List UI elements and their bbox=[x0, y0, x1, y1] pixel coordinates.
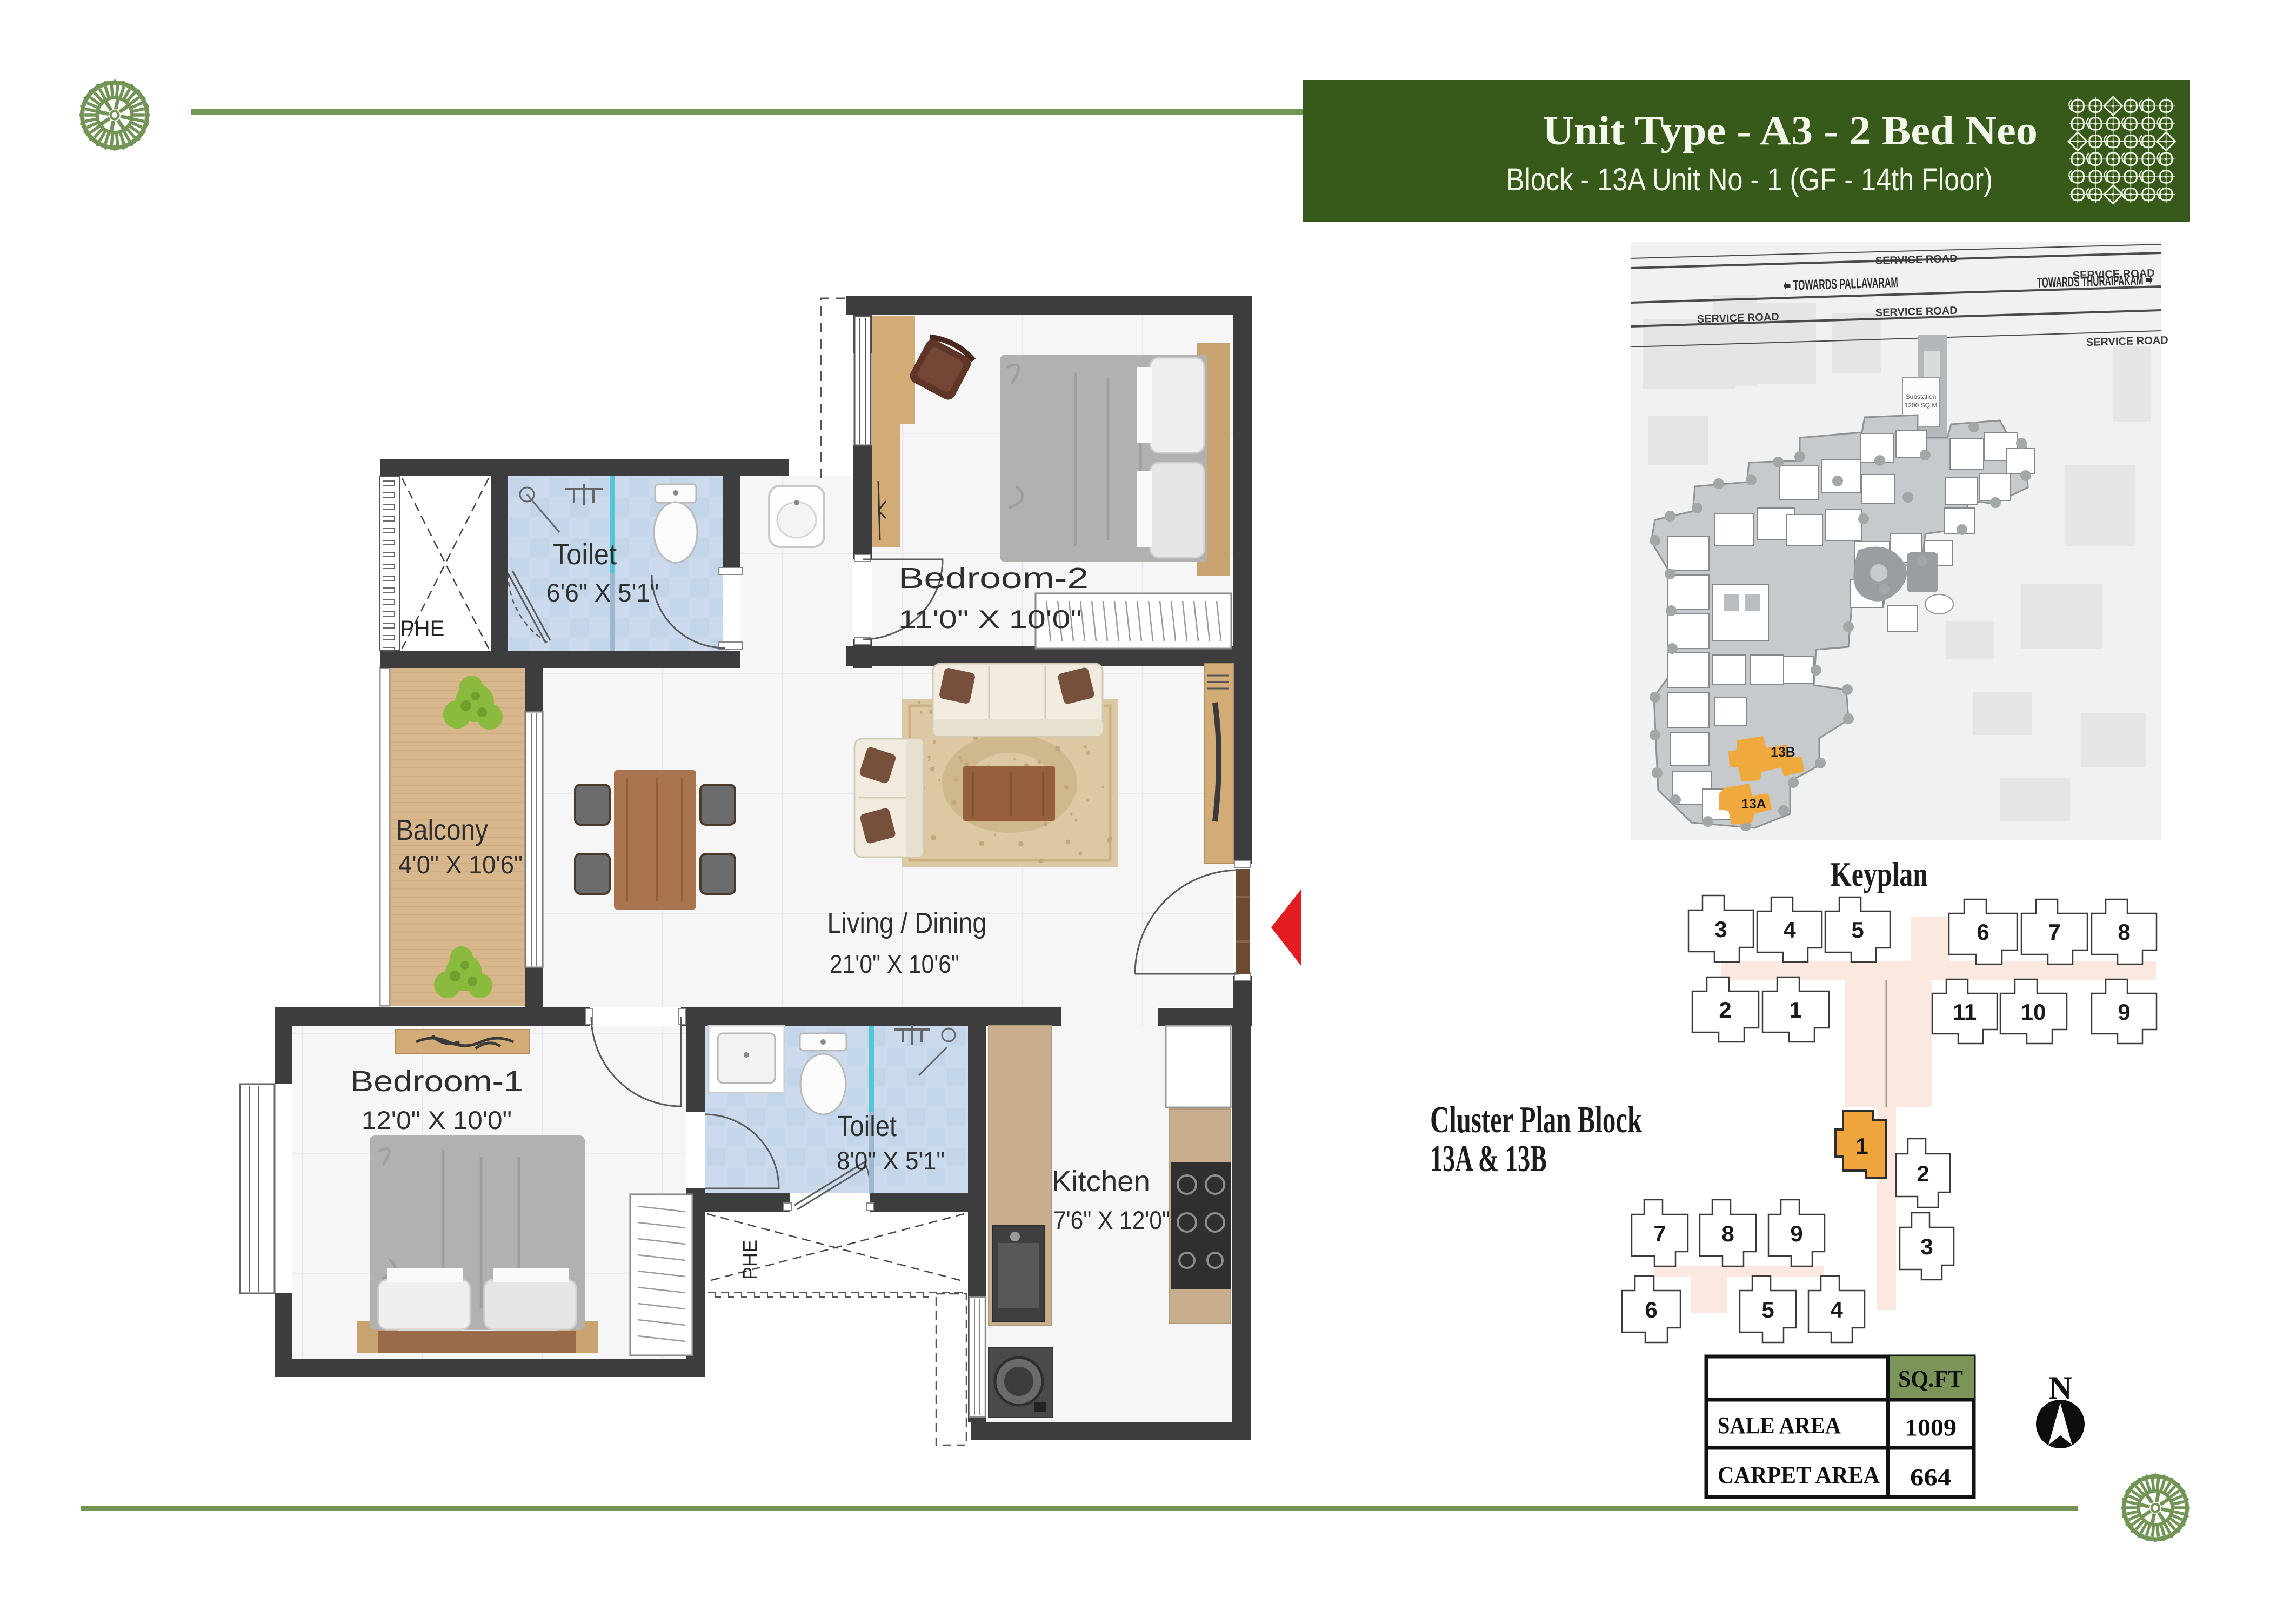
svg-text:2: 2 bbox=[1719, 997, 1731, 1022]
svg-text:SQ.FT: SQ.FT bbox=[1898, 1366, 1963, 1392]
svg-text:4: 4 bbox=[1830, 1297, 1843, 1322]
svg-text:Living / Dining: Living / Dining bbox=[827, 907, 987, 939]
svg-text:21'0" X 10'6": 21'0" X 10'6" bbox=[830, 950, 959, 978]
svg-text:5: 5 bbox=[1761, 1297, 1774, 1322]
svg-text:10: 10 bbox=[2021, 999, 2046, 1025]
svg-text:7'6" X 12'0": 7'6" X 12'0" bbox=[1053, 1206, 1170, 1234]
svg-text:1: 1 bbox=[1855, 1133, 1868, 1159]
svg-text:6: 6 bbox=[1977, 919, 1989, 945]
svg-text:11: 11 bbox=[1953, 999, 1977, 1025]
svg-text:13A & 13B: 13A & 13B bbox=[1430, 1138, 1547, 1180]
svg-text:5: 5 bbox=[1851, 917, 1864, 943]
svg-text:Keyplan: Keyplan bbox=[1831, 855, 1928, 893]
svg-text:13A: 13A bbox=[1741, 797, 1766, 812]
svg-text:Bedroom-1: Bedroom-1 bbox=[350, 1065, 523, 1098]
svg-text:PHE: PHE bbox=[400, 617, 444, 640]
svg-text:CARPET AREA: CARPET AREA bbox=[1718, 1462, 1880, 1488]
svg-text:Toilet: Toilet bbox=[553, 538, 617, 571]
svg-text:SERVICE ROAD: SERVICE ROAD bbox=[2086, 335, 2168, 349]
svg-text:Bedroom-2: Bedroom-2 bbox=[898, 562, 1089, 594]
svg-text:4: 4 bbox=[1783, 917, 1796, 943]
svg-text:4'0" X 10'6": 4'0" X 10'6" bbox=[398, 850, 523, 879]
svg-text:3: 3 bbox=[1920, 1234, 1933, 1259]
svg-text:9: 9 bbox=[1790, 1221, 1802, 1246]
svg-text:1: 1 bbox=[1789, 997, 1801, 1022]
svg-text:SERVICE ROAD: SERVICE ROAD bbox=[1875, 305, 1958, 319]
svg-text:SALE AREA: SALE AREA bbox=[1718, 1412, 1841, 1439]
svg-text:SERVICE ROAD: SERVICE ROAD bbox=[1875, 253, 1958, 267]
svg-text:TOWARDS THURAIPAKAM ➡: TOWARDS THURAIPAKAM ➡ bbox=[2037, 271, 2153, 291]
svg-text:⬅ TOWARDS PALLAVARAM: ⬅ TOWARDS PALLAVARAM bbox=[1783, 274, 1898, 293]
svg-text:7: 7 bbox=[2048, 919, 2060, 945]
svg-text:13B: 13B bbox=[1771, 745, 1795, 760]
svg-text:3: 3 bbox=[1714, 917, 1727, 942]
svg-text:1009: 1009 bbox=[1905, 1414, 1957, 1441]
svg-text:9: 9 bbox=[2118, 999, 2130, 1025]
svg-text:PHE: PHE bbox=[739, 1240, 761, 1280]
svg-text:Kitchen: Kitchen bbox=[1052, 1165, 1150, 1198]
svg-text:Cluster Plan Block: Cluster Plan Block bbox=[1430, 1099, 1642, 1141]
svg-text:12'0" X 10'0": 12'0" X 10'0" bbox=[362, 1106, 512, 1134]
svg-text:1200 SQ.M: 1200 SQ.M bbox=[1905, 402, 1938, 409]
svg-text:7: 7 bbox=[1653, 1221, 1666, 1246]
svg-text:8: 8 bbox=[2118, 919, 2130, 945]
svg-text:Substation: Substation bbox=[1906, 393, 1937, 400]
svg-text:8: 8 bbox=[1721, 1221, 1734, 1246]
svg-text:8'0" X 5'1": 8'0" X 5'1" bbox=[837, 1146, 945, 1175]
svg-text:11'0" X 10'0": 11'0" X 10'0" bbox=[898, 605, 1082, 633]
svg-text:SERVICE ROAD: SERVICE ROAD bbox=[1697, 311, 1779, 325]
svg-text:Balcony: Balcony bbox=[396, 814, 488, 846]
svg-text:Unit Type - A3 - 2 Bed Neo: Unit Type - A3 - 2 Bed Neo bbox=[1543, 108, 2038, 153]
svg-text:2: 2 bbox=[1917, 1161, 1929, 1186]
svg-text:664: 664 bbox=[1910, 1464, 1951, 1491]
svg-text:6: 6 bbox=[1645, 1297, 1657, 1322]
svg-text:6'6" X 5'1": 6'6" X 5'1" bbox=[546, 578, 659, 607]
svg-text:Toilet: Toilet bbox=[837, 1110, 897, 1142]
svg-text:Block - 13A Unit No - 1 (GF -: Block - 13A Unit No - 1 (GF - 14th Floor… bbox=[1506, 162, 1993, 197]
